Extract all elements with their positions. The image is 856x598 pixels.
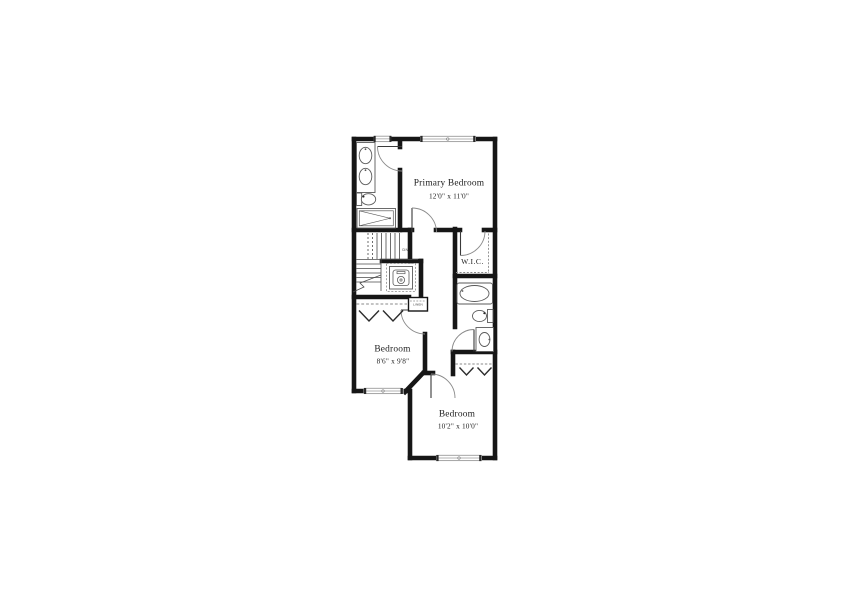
shower-icon (357, 209, 396, 229)
floor-plan-drawing (0, 0, 856, 598)
door-wic (461, 231, 486, 256)
hanging-rod-chevron-icon (478, 368, 492, 376)
stacked-washer-dryer-icon (387, 264, 416, 292)
hanging-rod-chevron-icon (460, 368, 474, 376)
window-bath1-top (374, 135, 392, 143)
window-primary-top (420, 136, 476, 144)
window-bedroom3-bottom (436, 455, 482, 463)
floor-plan-canvas: Primary Bedroom 12'0" x 11'0" W.I.C. Bed… (0, 0, 856, 598)
room-label-linen: LINEN (413, 303, 423, 306)
bathroom1-fixtures (357, 143, 396, 229)
sink-vanity-icon (476, 328, 494, 352)
room-dims-primary-bedroom: 12'0" x 11'0" (429, 192, 469, 199)
bedroom3-closet (456, 364, 493, 375)
room-label-bedroom-2: Bedroom (374, 345, 410, 354)
room-label-bedroom-3: Bedroom (439, 410, 475, 419)
bathroom2-fixtures (457, 283, 494, 352)
room-label-wic: W.I.C. (461, 258, 484, 266)
room-label-primary-bedroom: Primary Bedroom (414, 179, 484, 188)
door-bedroom2 (401, 310, 425, 334)
door-bath2 (452, 330, 474, 352)
room-dims-bedroom-3: 10'2" x 10'0" (438, 422, 478, 429)
hanging-rod-chevron-icon (383, 311, 403, 322)
room-dims-bedroom-2: 8'6" x 9'8" (377, 357, 410, 364)
door-primary-bedroom (412, 208, 437, 233)
bedroom2-closet (357, 304, 408, 321)
toilet-icon (357, 193, 376, 206)
hanging-rod-chevron-icon (359, 311, 379, 322)
door-bath1 (378, 147, 403, 172)
window-bedroom2-bottom (364, 388, 404, 396)
door-bedroom3 (431, 374, 455, 398)
bathtub-icon (457, 283, 493, 304)
stairs-direction-label: DN (402, 248, 408, 252)
toilet-icon (473, 310, 494, 323)
